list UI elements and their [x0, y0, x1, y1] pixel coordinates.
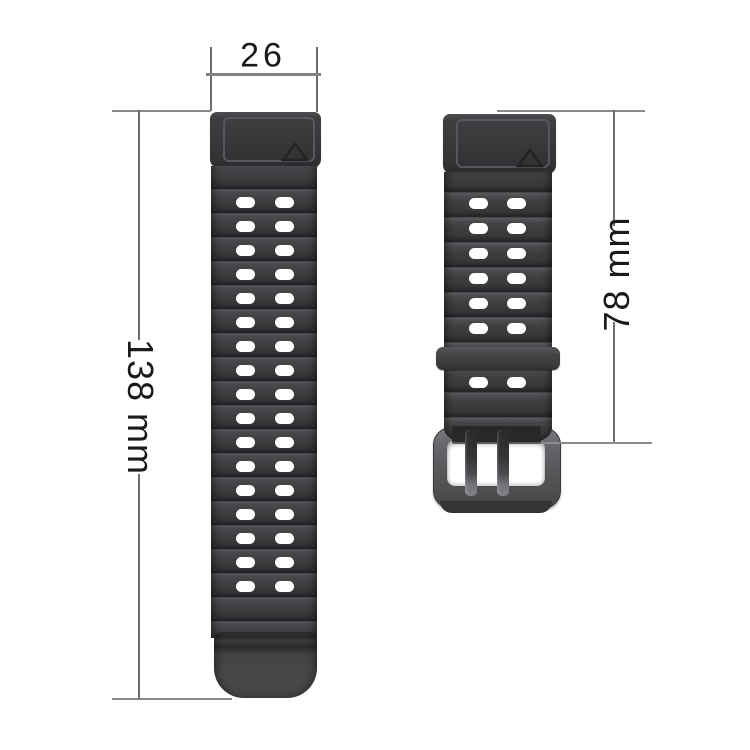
strap-hole — [236, 197, 255, 208]
short-strap-dimension-line-upper — [613, 110, 615, 226]
strap-hole — [236, 413, 255, 424]
strap-hole — [236, 269, 255, 280]
strap-hole — [236, 533, 255, 544]
strap-hole — [275, 317, 294, 328]
strap-hole — [236, 245, 255, 256]
long-strap-tip — [214, 632, 317, 698]
width-extension-line-right — [316, 47, 318, 112]
strap-hole — [236, 581, 255, 592]
strap-hole — [275, 509, 294, 520]
strap-hole — [507, 248, 526, 259]
strap-hole — [275, 245, 294, 256]
strap-hole — [275, 533, 294, 544]
keeper-loop — [436, 347, 560, 370]
buckle-bottom-shadow — [440, 501, 552, 513]
long-strap-connector — [210, 112, 321, 168]
strap-hole — [275, 485, 294, 496]
strap-hole — [507, 198, 526, 209]
strap-hole — [236, 557, 255, 568]
strap-hole — [275, 437, 294, 448]
width-extension-line-left — [210, 47, 212, 111]
long-strap-band — [211, 166, 317, 638]
strap-hole — [275, 581, 294, 592]
strap-hole — [507, 377, 526, 388]
strap-hole — [507, 223, 526, 234]
long-strap-extension-line-bottom — [112, 698, 232, 700]
strap-hole — [236, 485, 255, 496]
strap-hole — [469, 298, 488, 309]
strap-hole — [236, 461, 255, 472]
strap-hole — [507, 323, 526, 334]
strap-hole — [469, 273, 488, 284]
buckle-opening — [447, 440, 545, 486]
strap-hole — [507, 298, 526, 309]
strap-hole — [236, 437, 255, 448]
strap-hole — [236, 509, 255, 520]
short-strap-dimension-line-lower — [613, 322, 615, 443]
triangle-mark-icon — [516, 148, 544, 168]
short-strap-extension-line-top — [497, 110, 645, 112]
strap-hole — [275, 413, 294, 424]
strap-hole — [236, 317, 255, 328]
short-strap-connector — [443, 114, 556, 174]
strap-hole — [275, 269, 294, 280]
strap-hole — [275, 221, 294, 232]
strap-hole — [275, 341, 294, 352]
strap-hole — [236, 293, 255, 304]
buckle-prong-right — [497, 430, 509, 496]
strap-hole — [275, 389, 294, 400]
short-strap-length-label: 78 mm — [596, 216, 638, 331]
buckle-prong-left — [465, 430, 477, 496]
strap-hole — [275, 365, 294, 376]
strap-hole — [469, 223, 488, 234]
strap-hole — [275, 197, 294, 208]
strap-hole — [236, 221, 255, 232]
band-width-label: 26 — [240, 37, 286, 76]
strap-hole — [469, 323, 488, 334]
long-strap-dimension-line-lower — [138, 474, 140, 699]
short-strap-band — [444, 172, 552, 442]
strap-hole — [469, 377, 488, 388]
strap-hole — [275, 557, 294, 568]
strap-hole — [236, 365, 255, 376]
strap-hole — [469, 198, 488, 209]
long-strap-length-label: 138 mm — [119, 339, 161, 475]
strap-hole — [236, 389, 255, 400]
product-size-diagram: 26 138 mm 78 mm — [0, 0, 750, 750]
triangle-mark-icon — [281, 142, 309, 162]
strap-hole — [469, 248, 488, 259]
long-strap-extension-line-top — [112, 110, 211, 112]
strap-hole — [236, 341, 255, 352]
strap-hole — [275, 293, 294, 304]
strap-hole — [275, 461, 294, 472]
long-strap-dimension-line-upper — [138, 110, 140, 340]
strap-hole — [507, 273, 526, 284]
